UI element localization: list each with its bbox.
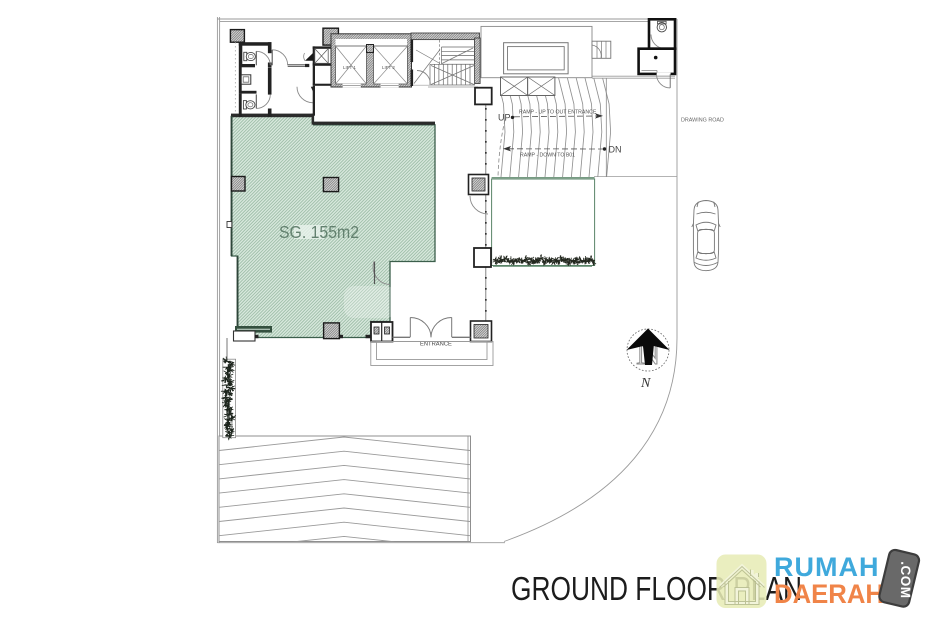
svg-text:RAMP - UP TO OUT ENTRANCE: RAMP - UP TO OUT ENTRANCE (519, 110, 597, 116)
svg-text:SG. 155m2: SG. 155m2 (279, 222, 359, 242)
svg-text:LIFT 2: LIFT 2 (382, 65, 395, 70)
svg-text:RUMAH: RUMAH (774, 552, 880, 582)
svg-text:UP: UP (498, 113, 511, 123)
svg-text:DN: DN (609, 145, 622, 155)
svg-text:ENTRANCE: ENTRANCE (420, 342, 452, 348)
svg-text:DAERAH: DAERAH (774, 579, 884, 609)
svg-text:LIFT 1: LIFT 1 (343, 65, 356, 70)
svg-text:.COM: .COM (898, 561, 913, 598)
svg-text:DRAWING ROAD: DRAWING ROAD (681, 118, 724, 124)
svg-text:RAMP - DOWN TO B01: RAMP - DOWN TO B01 (520, 153, 575, 159)
svg-text:N: N (640, 376, 651, 391)
